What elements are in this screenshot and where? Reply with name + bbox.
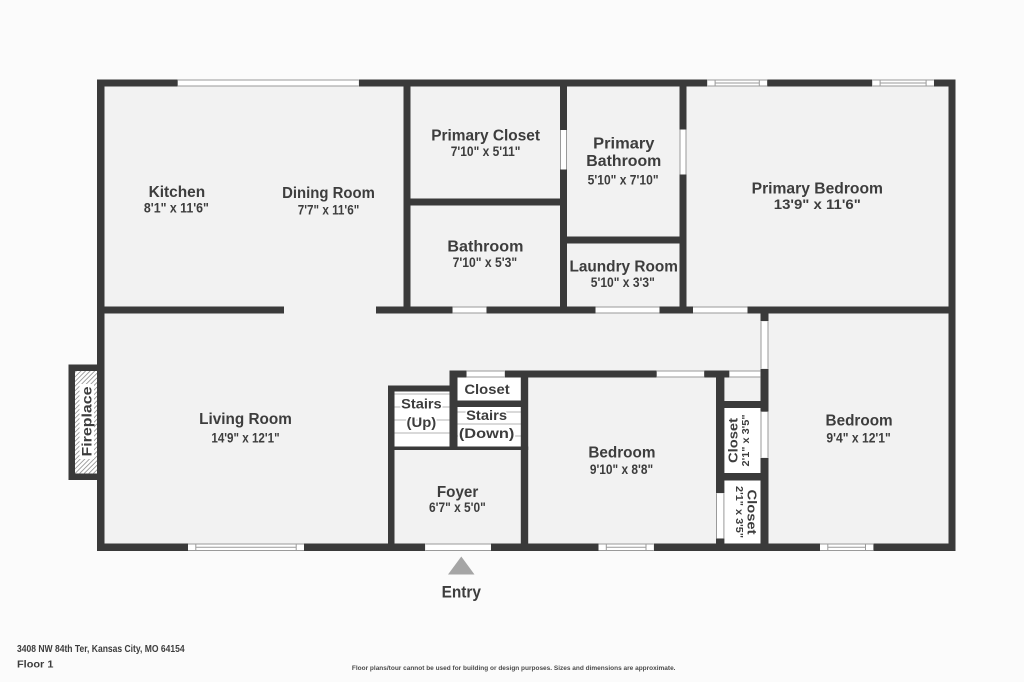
svg-text:14'9" x 12'1": 14'9" x 12'1" [211, 430, 279, 446]
svg-text:Stairs: Stairs [466, 407, 507, 423]
svg-text:Dining Room: Dining Room [282, 185, 375, 202]
svg-text:Laundry Room: Laundry Room [569, 259, 678, 276]
svg-text:2'1" x 3'5": 2'1" x 3'5" [740, 414, 752, 466]
svg-text:13'9" x 11'6": 13'9" x 11'6" [774, 196, 861, 212]
svg-text:Living Room: Living Room [199, 411, 292, 428]
svg-text:3408 NW 84th Ter, Kansas City,: 3408 NW 84th Ter, Kansas City, MO 64154 [17, 644, 185, 655]
svg-text:9'10" x 8'8": 9'10" x 8'8" [590, 461, 653, 477]
svg-text:Closet: Closet [745, 490, 760, 536]
svg-text:Stairs: Stairs [401, 396, 442, 412]
svg-text:7'7" x 11'6": 7'7" x 11'6" [298, 202, 360, 218]
svg-text:Closet: Closet [726, 417, 741, 463]
svg-text:Bedroom: Bedroom [588, 445, 655, 462]
svg-text:Floor plans/tour cannot be use: Floor plans/tour cannot be used for buil… [352, 665, 676, 672]
svg-text:6'7" x 5'0": 6'7" x 5'0" [429, 499, 486, 515]
svg-text:Fireplace: Fireplace [79, 386, 95, 456]
svg-text:5'10" x 7'10": 5'10" x 7'10" [588, 172, 659, 188]
svg-text:9'4" x 12'1": 9'4" x 12'1" [826, 430, 890, 446]
svg-text:Bathroom: Bathroom [447, 239, 523, 256]
svg-text:Floor 1: Floor 1 [17, 660, 54, 671]
svg-text:Entry: Entry [442, 583, 482, 602]
svg-text:Primary: Primary [593, 136, 654, 153]
svg-text:5'10" x 3'3": 5'10" x 3'3" [591, 274, 655, 290]
svg-text:8'1" x 11'6": 8'1" x 11'6" [144, 200, 209, 216]
svg-text:2'1" x 3'5": 2'1" x 3'5" [733, 486, 745, 538]
svg-text:Primary Bedroom: Primary Bedroom [752, 181, 883, 198]
svg-text:Kitchen: Kitchen [149, 184, 206, 201]
svg-text:Bathroom: Bathroom [586, 153, 661, 170]
svg-text:7'10" x 5'3": 7'10" x 5'3" [453, 254, 518, 270]
svg-text:(Up): (Up) [407, 414, 437, 430]
svg-text:7'10" x 5'11": 7'10" x 5'11" [451, 143, 521, 159]
svg-text:Bedroom: Bedroom [826, 413, 893, 430]
svg-text:Closet: Closet [464, 381, 510, 397]
svg-text:(Down): (Down) [459, 425, 515, 441]
svg-text:Primary Closet: Primary Closet [431, 128, 540, 145]
